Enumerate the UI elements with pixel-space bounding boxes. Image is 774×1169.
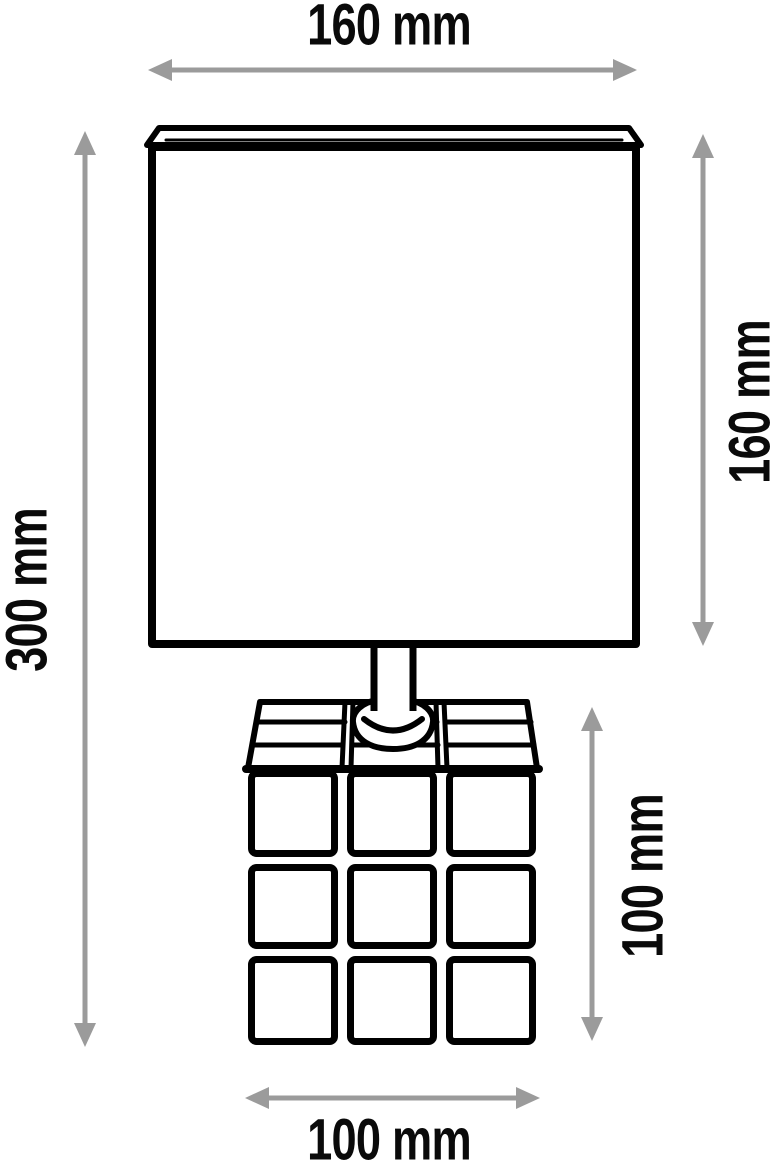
arrow-down-head-icon: [581, 1017, 603, 1041]
dim-arrow-total-height: [74, 131, 96, 1047]
dim-label-base-height: 100 mm: [610, 794, 677, 958]
arrow-left-head-icon: [245, 1087, 269, 1109]
arrow-down-head-icon: [692, 622, 714, 646]
dim-label-total-height: 300 mm: [0, 508, 61, 672]
dim-label-shade-height: 160 mm: [717, 320, 774, 484]
arrow-up-head-icon: [74, 131, 96, 155]
arrow-up-head-icon: [581, 707, 603, 731]
lamp-dimension-diagram: 160 mm 300 mm 160 mm 100 mm 100 mm: [0, 0, 774, 1169]
arrow-down-head-icon: [74, 1023, 96, 1047]
base-front-tiles: [252, 774, 533, 1042]
cube-base: [246, 702, 539, 1042]
shade-front-face: [152, 147, 636, 644]
dim-label-shade-width: 160 mm: [307, 0, 471, 59]
dim-arrow-shade-width: [148, 59, 637, 81]
lampshade: [147, 128, 641, 644]
lamp-stem: [374, 640, 413, 711]
arrow-right-head-icon: [516, 1087, 540, 1109]
shade-top-rim: [147, 128, 641, 145]
dim-arrow-base-height: [581, 707, 603, 1041]
dim-arrow-shade-height: [692, 134, 714, 646]
arrow-right-head-icon: [613, 59, 637, 81]
arrow-up-head-icon: [692, 134, 714, 158]
dim-label-base-width: 100 mm: [307, 1107, 471, 1169]
arrow-left-head-icon: [148, 59, 172, 81]
lamp-line-art: [0, 0, 774, 1169]
